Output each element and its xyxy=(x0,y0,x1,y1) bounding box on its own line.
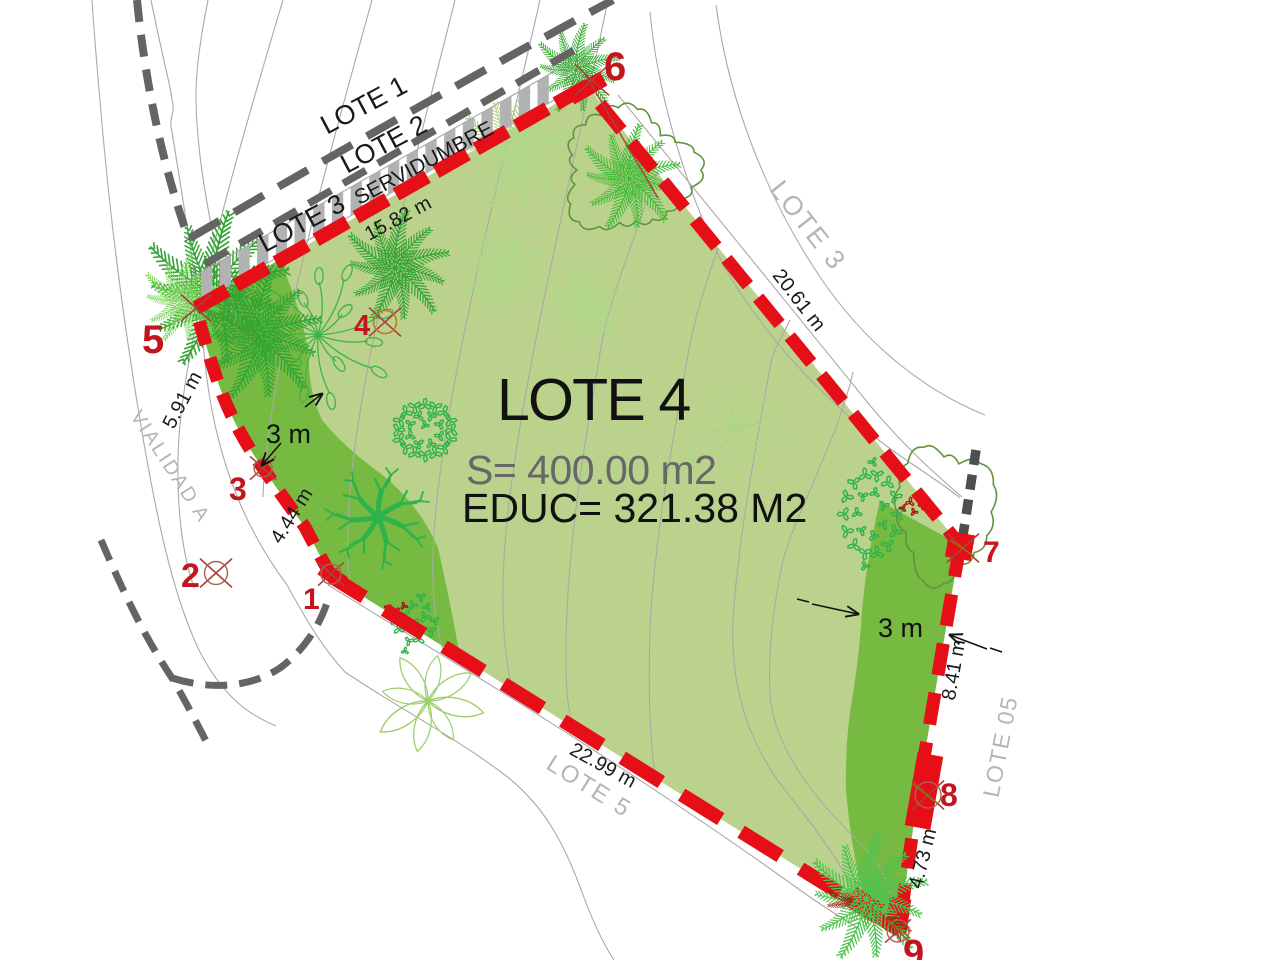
svg-text:4: 4 xyxy=(354,310,370,342)
svg-text:3 m: 3 m xyxy=(266,419,311,449)
svg-text:EDUC= 321.38 M2: EDUC= 321.38 M2 xyxy=(462,485,807,531)
svg-text:LOTE 4: LOTE 4 xyxy=(497,367,690,433)
svg-text:5: 5 xyxy=(142,318,164,362)
svg-text:1: 1 xyxy=(303,583,320,616)
svg-text:3 m: 3 m xyxy=(878,613,923,643)
svg-text:8: 8 xyxy=(940,777,958,813)
svg-text:7: 7 xyxy=(983,536,1000,569)
svg-text:3: 3 xyxy=(229,471,247,507)
svg-text:2: 2 xyxy=(181,557,200,595)
svg-text:9: 9 xyxy=(903,933,924,960)
svg-text:6: 6 xyxy=(604,45,626,89)
